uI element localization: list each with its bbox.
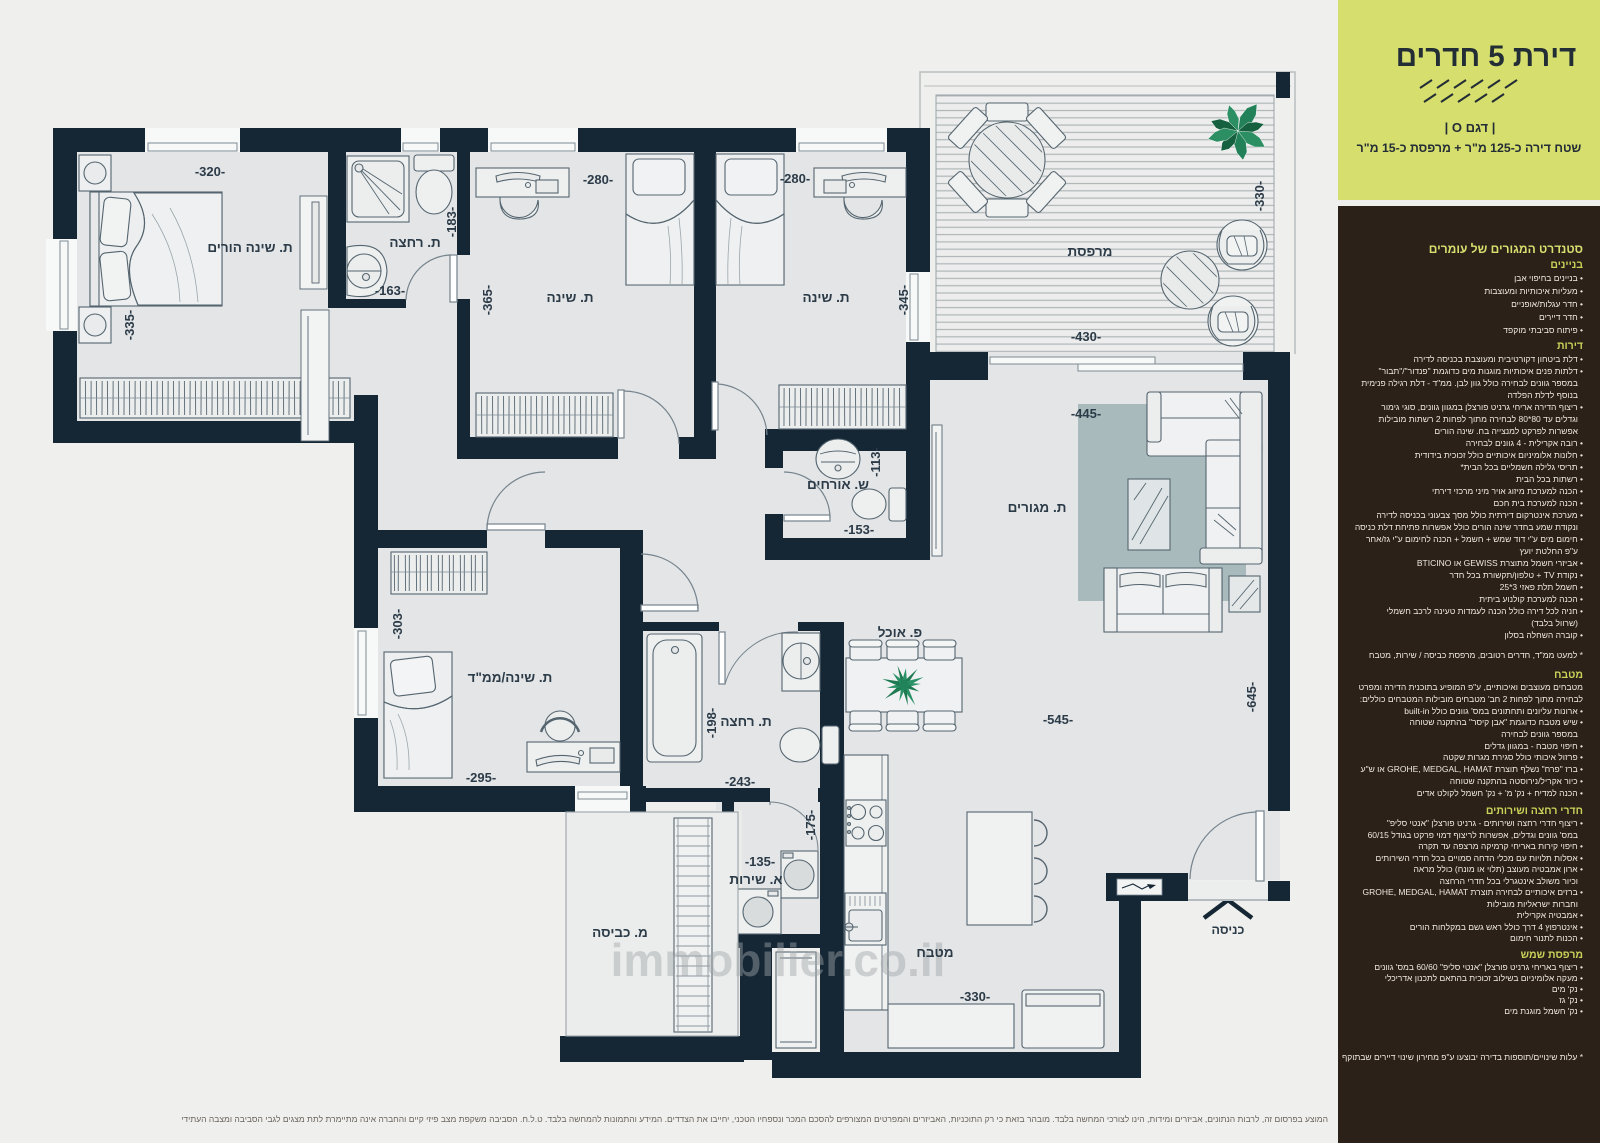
svg-text:מ. כביסה: מ. כביסה [592, 925, 648, 940]
svg-text:סטנדרט המגורים של עומרים: סטנדרט המגורים של עומרים [1429, 242, 1583, 256]
svg-text:• נק' מים: • נק' מים [1552, 984, 1583, 994]
svg-text:• אמבטיה אקרילית: • אמבטיה אקרילית [1517, 910, 1583, 920]
svg-text:• מעליות איכותיות ומעוצבות: • מעליות איכותיות ומעוצבות [1484, 286, 1583, 296]
svg-text:• פרזול איכותי כולל סגירת מגרו: • פרזול איכותי כולל סגירת מגרות שקטה [1443, 752, 1583, 762]
svg-text:-345-: -345- [896, 285, 911, 315]
svg-text:בנוסף לדלת הפלדה: בנוסף לדלת הפלדה [1508, 390, 1578, 400]
svg-text:-330-: -330- [960, 989, 990, 1004]
svg-text:• חלונות אלומיניום איכותיים כו: • חלונות אלומיניום איכותיים כולל זכוכית … [1415, 450, 1583, 460]
svg-text:-153-: -153- [844, 522, 874, 537]
svg-text:• דלתות פנים איכותיות מוגנות מ: • דלתות פנים איכותיות מוגנות מים כדוגמת … [1379, 366, 1583, 376]
svg-text:• מערכת אינטרקום דירתית כולל מ: • מערכת אינטרקום דירתית כולל מסך צבעוני … [1376, 510, 1583, 520]
svg-text:ת. מגורים: ת. מגורים [1008, 500, 1067, 515]
svg-text:-320-: -320- [195, 164, 225, 179]
svg-text:-243-: -243- [725, 774, 755, 789]
svg-text:• אינטרפוץ 4 דרך כולל ראש גשם: • אינטרפוץ 4 דרך כולל ראש גשם במקלחות הו… [1410, 922, 1583, 932]
svg-text:במספר גוונים לבחירה כולל גוון: במספר גוונים לבחירה כולל גוון לבן. ממ"ד … [1361, 378, 1578, 388]
svg-text:• תריסי גלילה חשמליים בכל הבית: • תריסי גלילה חשמליים בכל הבית* [1460, 462, 1583, 472]
svg-text:• הכנה למערכת בית חכם: • הכנה למערכת בית חכם [1494, 498, 1583, 508]
svg-text:-335-: -335- [122, 310, 137, 340]
svg-text:מרפסת שמש: מרפסת שמש [1521, 949, 1583, 961]
svg-text:• כיור אקריל/נירוסטה בהתקנה שט: • כיור אקריל/נירוסטה בהתקנה שטוחה [1450, 776, 1583, 786]
svg-text:-445-: -445- [1071, 406, 1101, 421]
svg-text:• בניינים בחיפוי אבן: • בניינים בחיפוי אבן [1514, 273, 1583, 283]
svg-text:• ארון אמבטיה מעוצב (תלוי או מ: • ארון אמבטיה מעוצב (תלוי או מונח) כולל … [1413, 864, 1583, 874]
svg-text:• נקודת TV + טלפון/תקשורת בכל: • נקודת TV + טלפון/תקשורת בכל חדר [1449, 570, 1583, 580]
svg-text:וכיור משולב אינטגרלי בכל חדרי: וכיור משולב אינטגרלי בכל חדרי הרחצה [1440, 876, 1578, 886]
svg-text:• הכנה למערכת מיזוג אויר מיני: • הכנה למערכת מיזוג אויר מיני מרכזי דירת… [1432, 486, 1583, 496]
svg-text:-175-: -175- [803, 810, 818, 840]
svg-text:-198-: -198- [704, 708, 719, 738]
svg-text:וגדלים עד 80*80 לבחירה מתוך לפ: וגדלים עד 80*80 לבחירה מתוך לפחות 2 רשתו… [1378, 414, 1578, 424]
svg-text:• חניה לכל דירה כולל הכנה לעמד: • חניה לכל דירה כולל הכנה לעמדות טעינה ל… [1387, 606, 1583, 616]
svg-text:במספר גוונים לבחירה: במספר גוונים לבחירה [1501, 729, 1578, 739]
svg-text:• דלת ביטחון דקורטיבית ומעוצבת: • דלת ביטחון דקורטיבית ומעוצבת בכניסה לד… [1413, 354, 1583, 364]
svg-text:• שיש מטבח כדוגמת "אבן קיסר" ב: • שיש מטבח כדוגמת "אבן קיסר" בהתקנה שטוח… [1409, 717, 1583, 727]
svg-text:• ריצוף חדרי רחצה ושירותים - ג: • ריצוף חדרי רחצה ושירותים - גרניט פורצל… [1387, 818, 1583, 828]
svg-text:-183-: -183- [444, 207, 459, 237]
svg-text:• ברז "פרח" נשלף תוצרת GROHE,: • ברז "פרח" נשלף תוצרת GROHE, MEDGAL, HA… [1361, 764, 1583, 774]
svg-text:• חדר עגלות/אופניים: • חדר עגלות/אופניים [1511, 299, 1583, 309]
svg-text:• חדר דיירים: • חדר דיירים [1539, 312, 1583, 322]
svg-text:-365-: -365- [480, 285, 495, 315]
svg-text:(שרוול בלבד): (שרוול בלבד) [1531, 618, 1578, 628]
svg-text:• קוברה השחלה בסלון: • קוברה השחלה בסלון [1504, 630, 1583, 640]
svg-text:דירות: דירות [1557, 340, 1583, 352]
svg-text:חדרי רחצה ושירותים: חדרי רחצה ושירותים [1486, 805, 1583, 817]
svg-text:• אביזרי חשמל מתוצרת GEWISS או: • אביזרי חשמל מתוצרת GEWISS או BTICINO [1417, 558, 1583, 568]
svg-text:ע"פ החלטת יועץ: ע"פ החלטת יועץ [1520, 546, 1578, 556]
svg-text:• רשתות בכל הבית: • רשתות בכל הבית [1516, 474, 1583, 484]
svg-text:• נק' חשמל מוגנת מים: • נק' חשמל מוגנת מים [1504, 1006, 1583, 1016]
svg-text:-330-: -330- [1252, 181, 1267, 211]
svg-text:כניסה: כניסה [1212, 923, 1245, 937]
svg-text:-163-: -163- [375, 283, 405, 298]
svg-text:• מעקה אלומיניום בשילוב זכוכית: • מעקה אלומיניום בשילוב זכוכית בהתאם לתכ… [1385, 973, 1583, 983]
svg-text:* למעט ממ"ד, חדרים רטובים, מרפ: * למעט ממ"ד, חדרים רטובים, מרפסת כביסה /… [1369, 650, 1584, 660]
svg-text:* עלות שינויים/תוספות בדירה יב: * עלות שינויים/תוספות בדירה יבוצעו ע"פ מ… [1342, 1052, 1584, 1062]
svg-text:מטבחים מעוצבים ואיכותיים, ע"פ: מטבחים מעוצבים ואיכותיים, ע"פ המופיע בתו… [1359, 682, 1584, 692]
svg-text:לבחירה מתוך לפחות 2 חב' מטבחים: לבחירה מתוך לפחות 2 חב' מטבחים מובילות ה… [1360, 694, 1584, 704]
svg-text:מרפסת: מרפסת [1068, 244, 1113, 259]
svg-text:• חיפוי קירות באריחי קרמיקה מר: • חיפוי קירות באריחי קרמיקה מרצפה עד תקר… [1418, 841, 1583, 851]
svg-text:• הכנה למדיח + נק' מ' + נק' חש: • הכנה למדיח + נק' מ' + נק' חשמל לקולט א… [1417, 788, 1583, 798]
svg-text:• חימום מים ע"י דוד שמש + חשמל: • חימום מים ע"י דוד שמש + חשמל + הכנה לח… [1366, 534, 1583, 544]
svg-text:שטח דירה כ-125 מ"ר + מרפסת כ-1: שטח דירה כ-125 מ"ר + מרפסת כ-15 מ"ר [1357, 141, 1582, 155]
svg-text:-645-: -645- [1244, 682, 1259, 712]
svg-text:• הכנות לתנור חימום: • הכנות לתנור חימום [1510, 933, 1583, 943]
svg-text:• ריצוף באריחי גרניט פורצלן "א: • ריצוף באריחי גרניט פורצלן "אנטי סליפ" … [1374, 962, 1583, 972]
svg-text:ת. שינה הורים: ת. שינה הורים [207, 240, 292, 255]
svg-text:| דגם O |: | דגם O | [1445, 120, 1496, 135]
svg-text:ש. אורחים: ש. אורחים [807, 477, 869, 492]
svg-text:ת. שינה: ת. שינה [546, 290, 593, 305]
svg-text:במס' גוונים וגדלים, אפשרות לרי: במס' גוונים וגדלים, אפשרות לריצוף דמוי פ… [1368, 830, 1578, 840]
svg-text:immobilier.co.il: immobilier.co.il [611, 934, 946, 986]
svg-text:בניינים: בניינים [1550, 259, 1583, 271]
svg-text:ת. רחצה: ת. רחצה [389, 235, 440, 250]
svg-text:דירת 5 חדרים: דירת 5 חדרים [1396, 40, 1577, 73]
svg-text:• ברזים איכותיים לבחירה תוצרת: • ברזים איכותיים לבחירה תוצרת GROHE, MED… [1363, 887, 1583, 897]
svg-text:ת. שינה/ממ"ד: ת. שינה/ממ"ד [468, 670, 553, 685]
svg-text:ת. רחצה: ת. רחצה [720, 714, 771, 729]
svg-text:-303-: -303- [390, 609, 405, 639]
svg-text:• נק' גז: • נק' גז [1559, 995, 1583, 1005]
svg-text:אפשרות לפרקט למנצייה בח. שינה: אפשרות לפרקט למנצייה בח. שינה הורים [1434, 426, 1578, 436]
svg-text:-280-: -280- [583, 172, 613, 187]
svg-text:-295-: -295- [466, 770, 496, 785]
svg-text:• הכנה למערכת קולנוע ביתית: • הכנה למערכת קולנוע ביתית [1479, 594, 1583, 604]
svg-text:• אסלות תלויות עם מכלי הדחה סמ: • אסלות תלויות עם מכלי הדחה סמויים בכל ח… [1375, 853, 1583, 863]
svg-text:-280-: -280- [780, 171, 810, 186]
svg-text:-545-: -545- [1043, 712, 1073, 727]
svg-text:• ארונות עליונים ותחתונים במס': • ארונות עליונים ותחתונים במס' גוונים כו… [1404, 706, 1583, 716]
svg-text:מטבח: מטבח [1554, 669, 1583, 681]
svg-text:המוצע בפרסום זה, לרבות הנתונים: המוצע בפרסום זה, לרבות הנתונים, אביזרים … [181, 1114, 1328, 1124]
svg-text:-430-: -430- [1071, 329, 1101, 344]
svg-text:מטבח: מטבח [916, 945, 953, 960]
svg-text:• פיתוח סביבתי מוקפד: • פיתוח סביבתי מוקפד [1503, 325, 1583, 335]
svg-text:ונקודת שמע בחדר שינה הורים כול: ונקודת שמע בחדר שינה הורים כולל אפשרות פ… [1355, 522, 1578, 532]
svg-text:וחברות ישראליות מובילות: וחברות ישראליות מובילות [1487, 899, 1578, 909]
svg-text:-135-: -135- [745, 854, 775, 869]
svg-text:א. שירות: א. שירות [729, 872, 782, 887]
svg-text:• חיפוי מטבח - במגוון גדלים: • חיפוי מטבח - במגוון גדלים [1484, 741, 1583, 751]
svg-text:• ריצוף הדירה אריחי גרניט פורצ: • ריצוף הדירה אריחי גרניט פורצלן במגוון … [1381, 402, 1583, 412]
svg-text:ת. שינה: ת. שינה [802, 290, 849, 305]
svg-text:פ. אוכל: פ. אוכל [878, 625, 923, 640]
svg-text:• חשמל תלת פאזי 3*25: • חשמל תלת פאזי 3*25 [1500, 582, 1583, 592]
svg-text:• רובה אקרילית - 4 גוונים לבחי: • רובה אקרילית - 4 גוונים לבחירה [1466, 438, 1583, 448]
svg-text:-113-: -113- [868, 447, 883, 477]
